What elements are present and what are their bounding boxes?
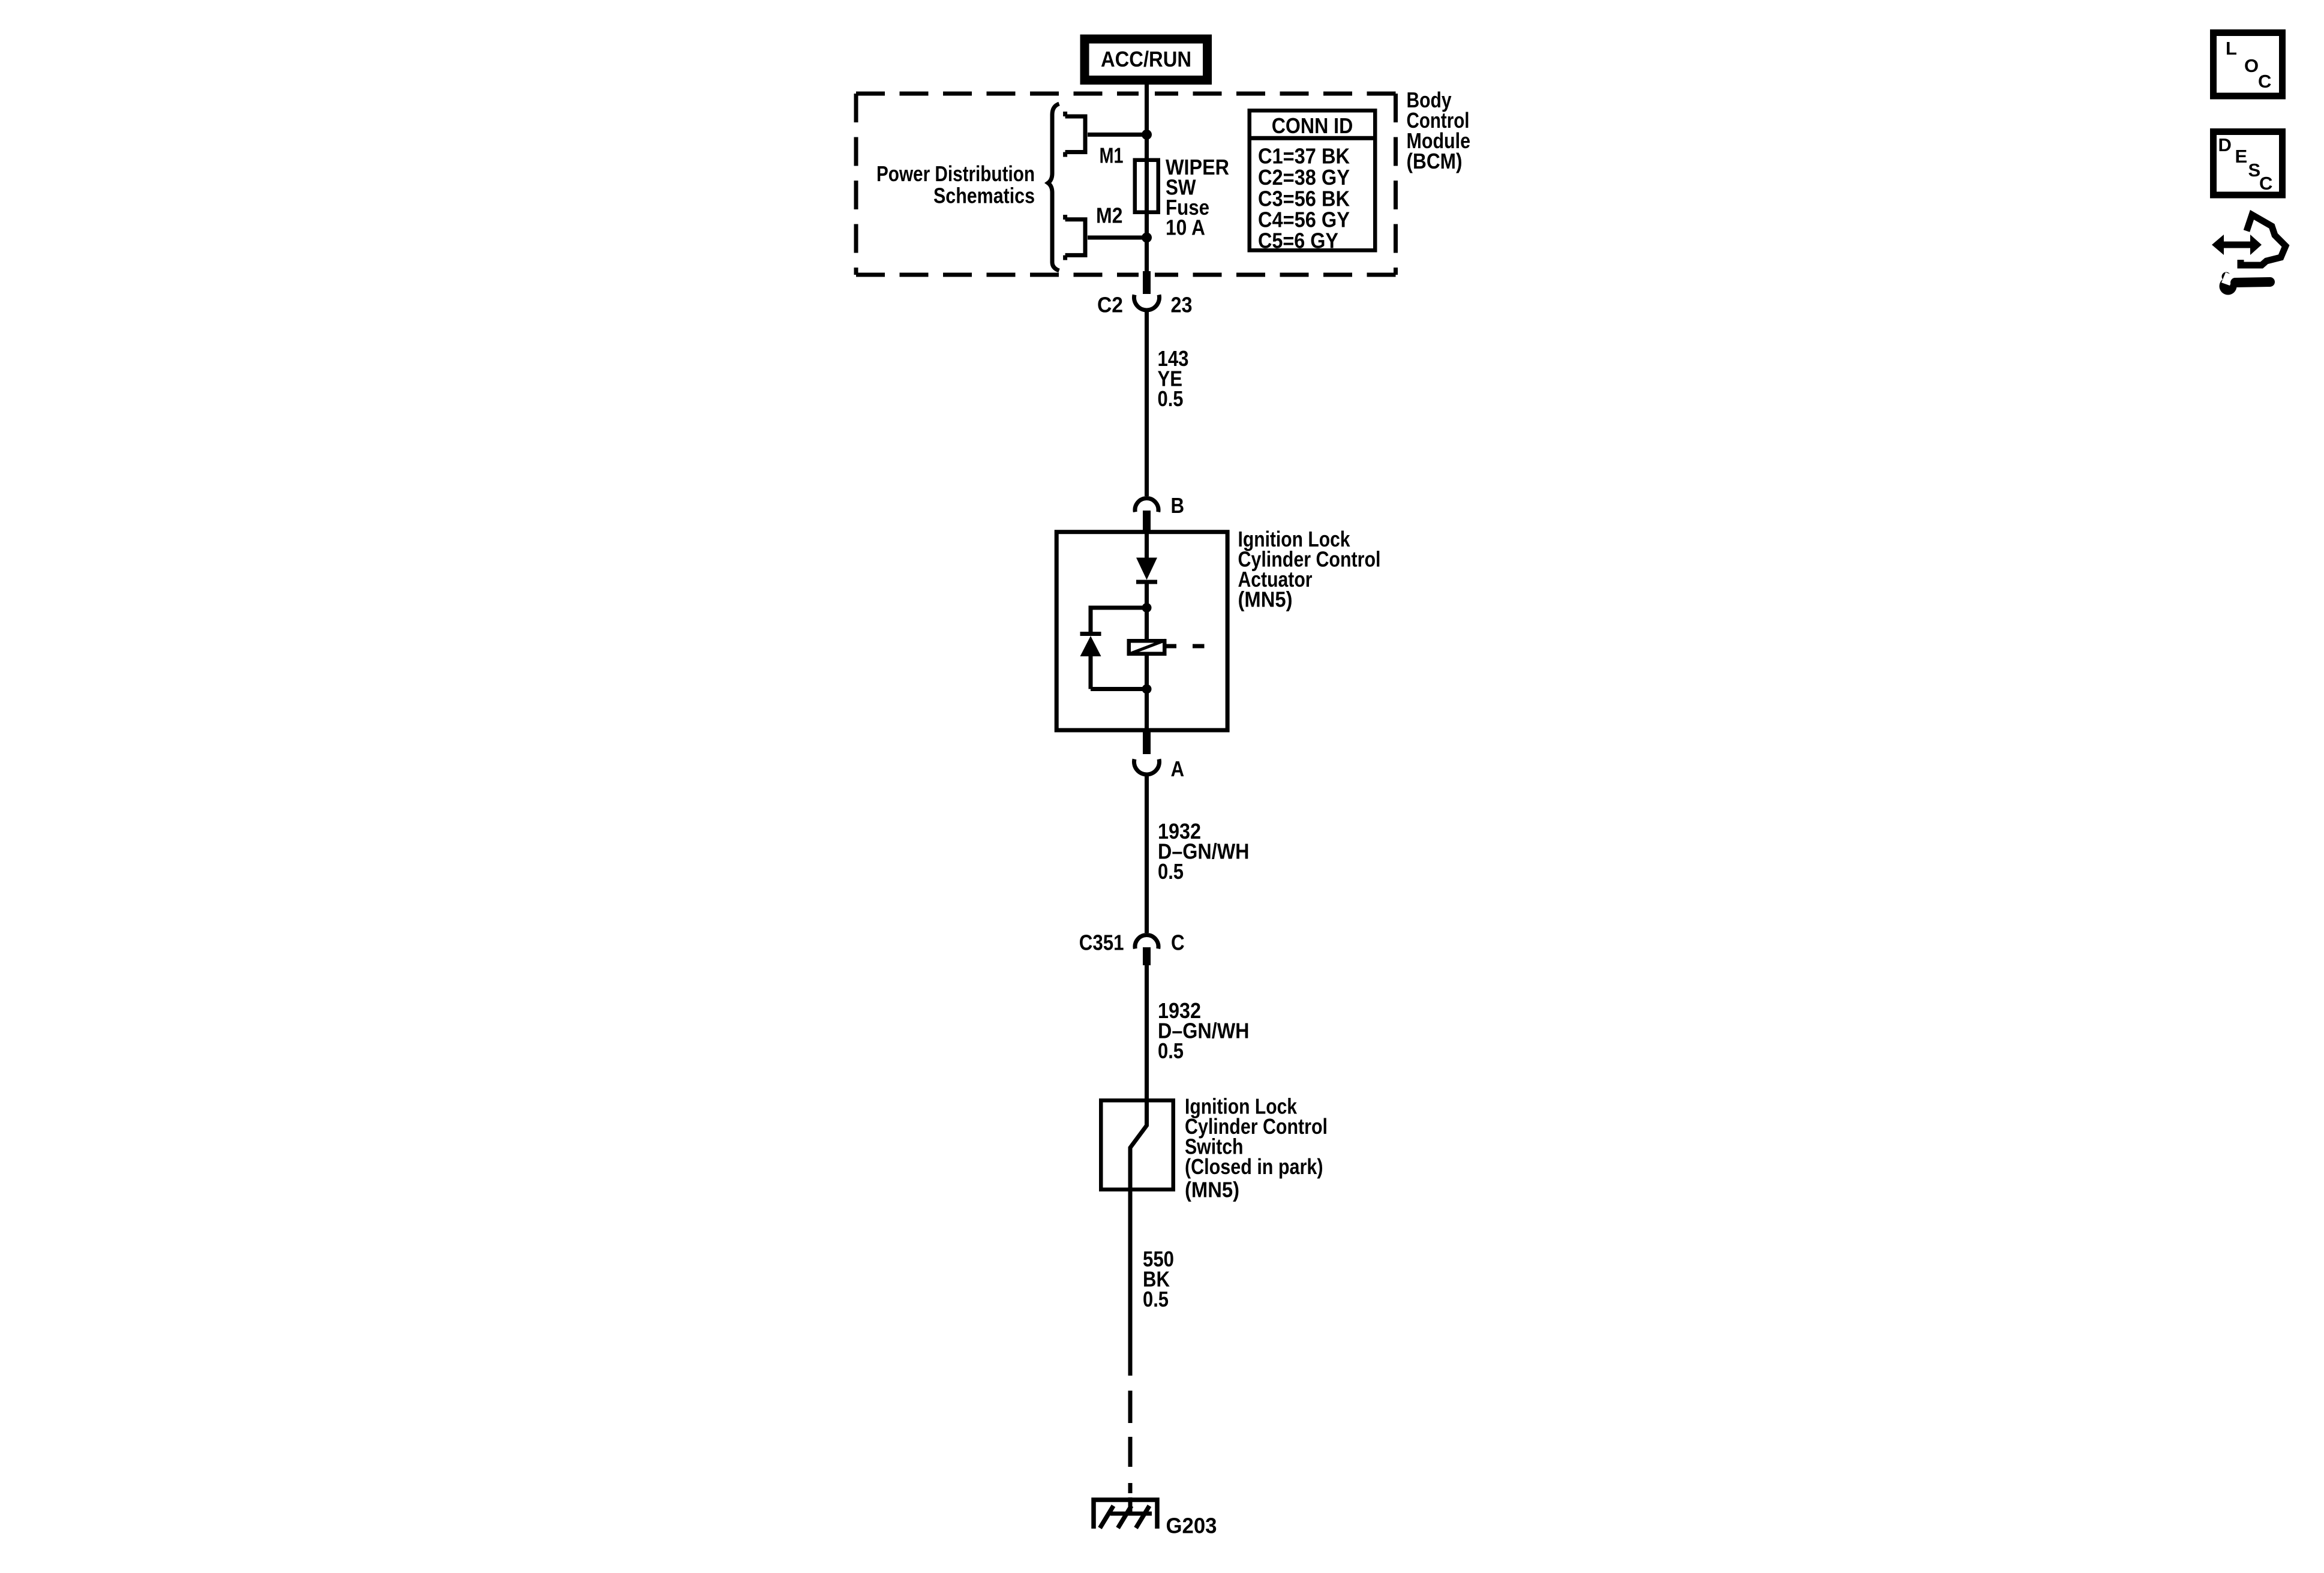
svg-text:10 A: 10 A [1166,215,1205,239]
svg-text:(MN5): (MN5) [1185,1177,1239,1202]
svg-text:C: C [2258,71,2271,92]
svg-text:(MN5): (MN5) [1238,587,1293,611]
svg-text:0.5: 0.5 [1158,1038,1184,1063]
svg-text:A: A [1171,757,1185,781]
svg-text:0.5: 0.5 [1158,859,1184,884]
svg-text:D: D [2218,134,2232,155]
svg-text:B: B [1171,493,1185,518]
svg-text:M1: M1 [1100,143,1124,167]
svg-text:M2: M2 [1096,203,1123,227]
svg-text:CONN ID: CONN ID [1272,113,1353,138]
svg-text:Schematics: Schematics [933,183,1035,208]
svg-text:0.5: 0.5 [1143,1287,1169,1311]
svg-text:C: C [2259,173,2272,194]
svg-text:G203: G203 [1166,1513,1217,1538]
svg-text:(Closed in park): (Closed in park) [1185,1154,1323,1179]
svg-text:ACC/RUN: ACC/RUN [1101,47,1191,71]
svg-text:O: O [2244,55,2259,76]
svg-text:23: 23 [1171,292,1193,317]
svg-text:Power Distribution: Power Distribution [876,161,1035,186]
svg-text:C: C [1171,930,1185,954]
svg-text:L: L [2226,38,2237,59]
svg-text:(BCM): (BCM) [1407,149,1463,173]
svg-text:C2: C2 [1097,292,1123,317]
svg-text:C5=6 GY: C5=6 GY [1258,228,1338,253]
svg-text:0.5: 0.5 [1158,386,1184,411]
svg-text:E: E [2235,146,2248,167]
svg-text:C351: C351 [1079,930,1124,954]
